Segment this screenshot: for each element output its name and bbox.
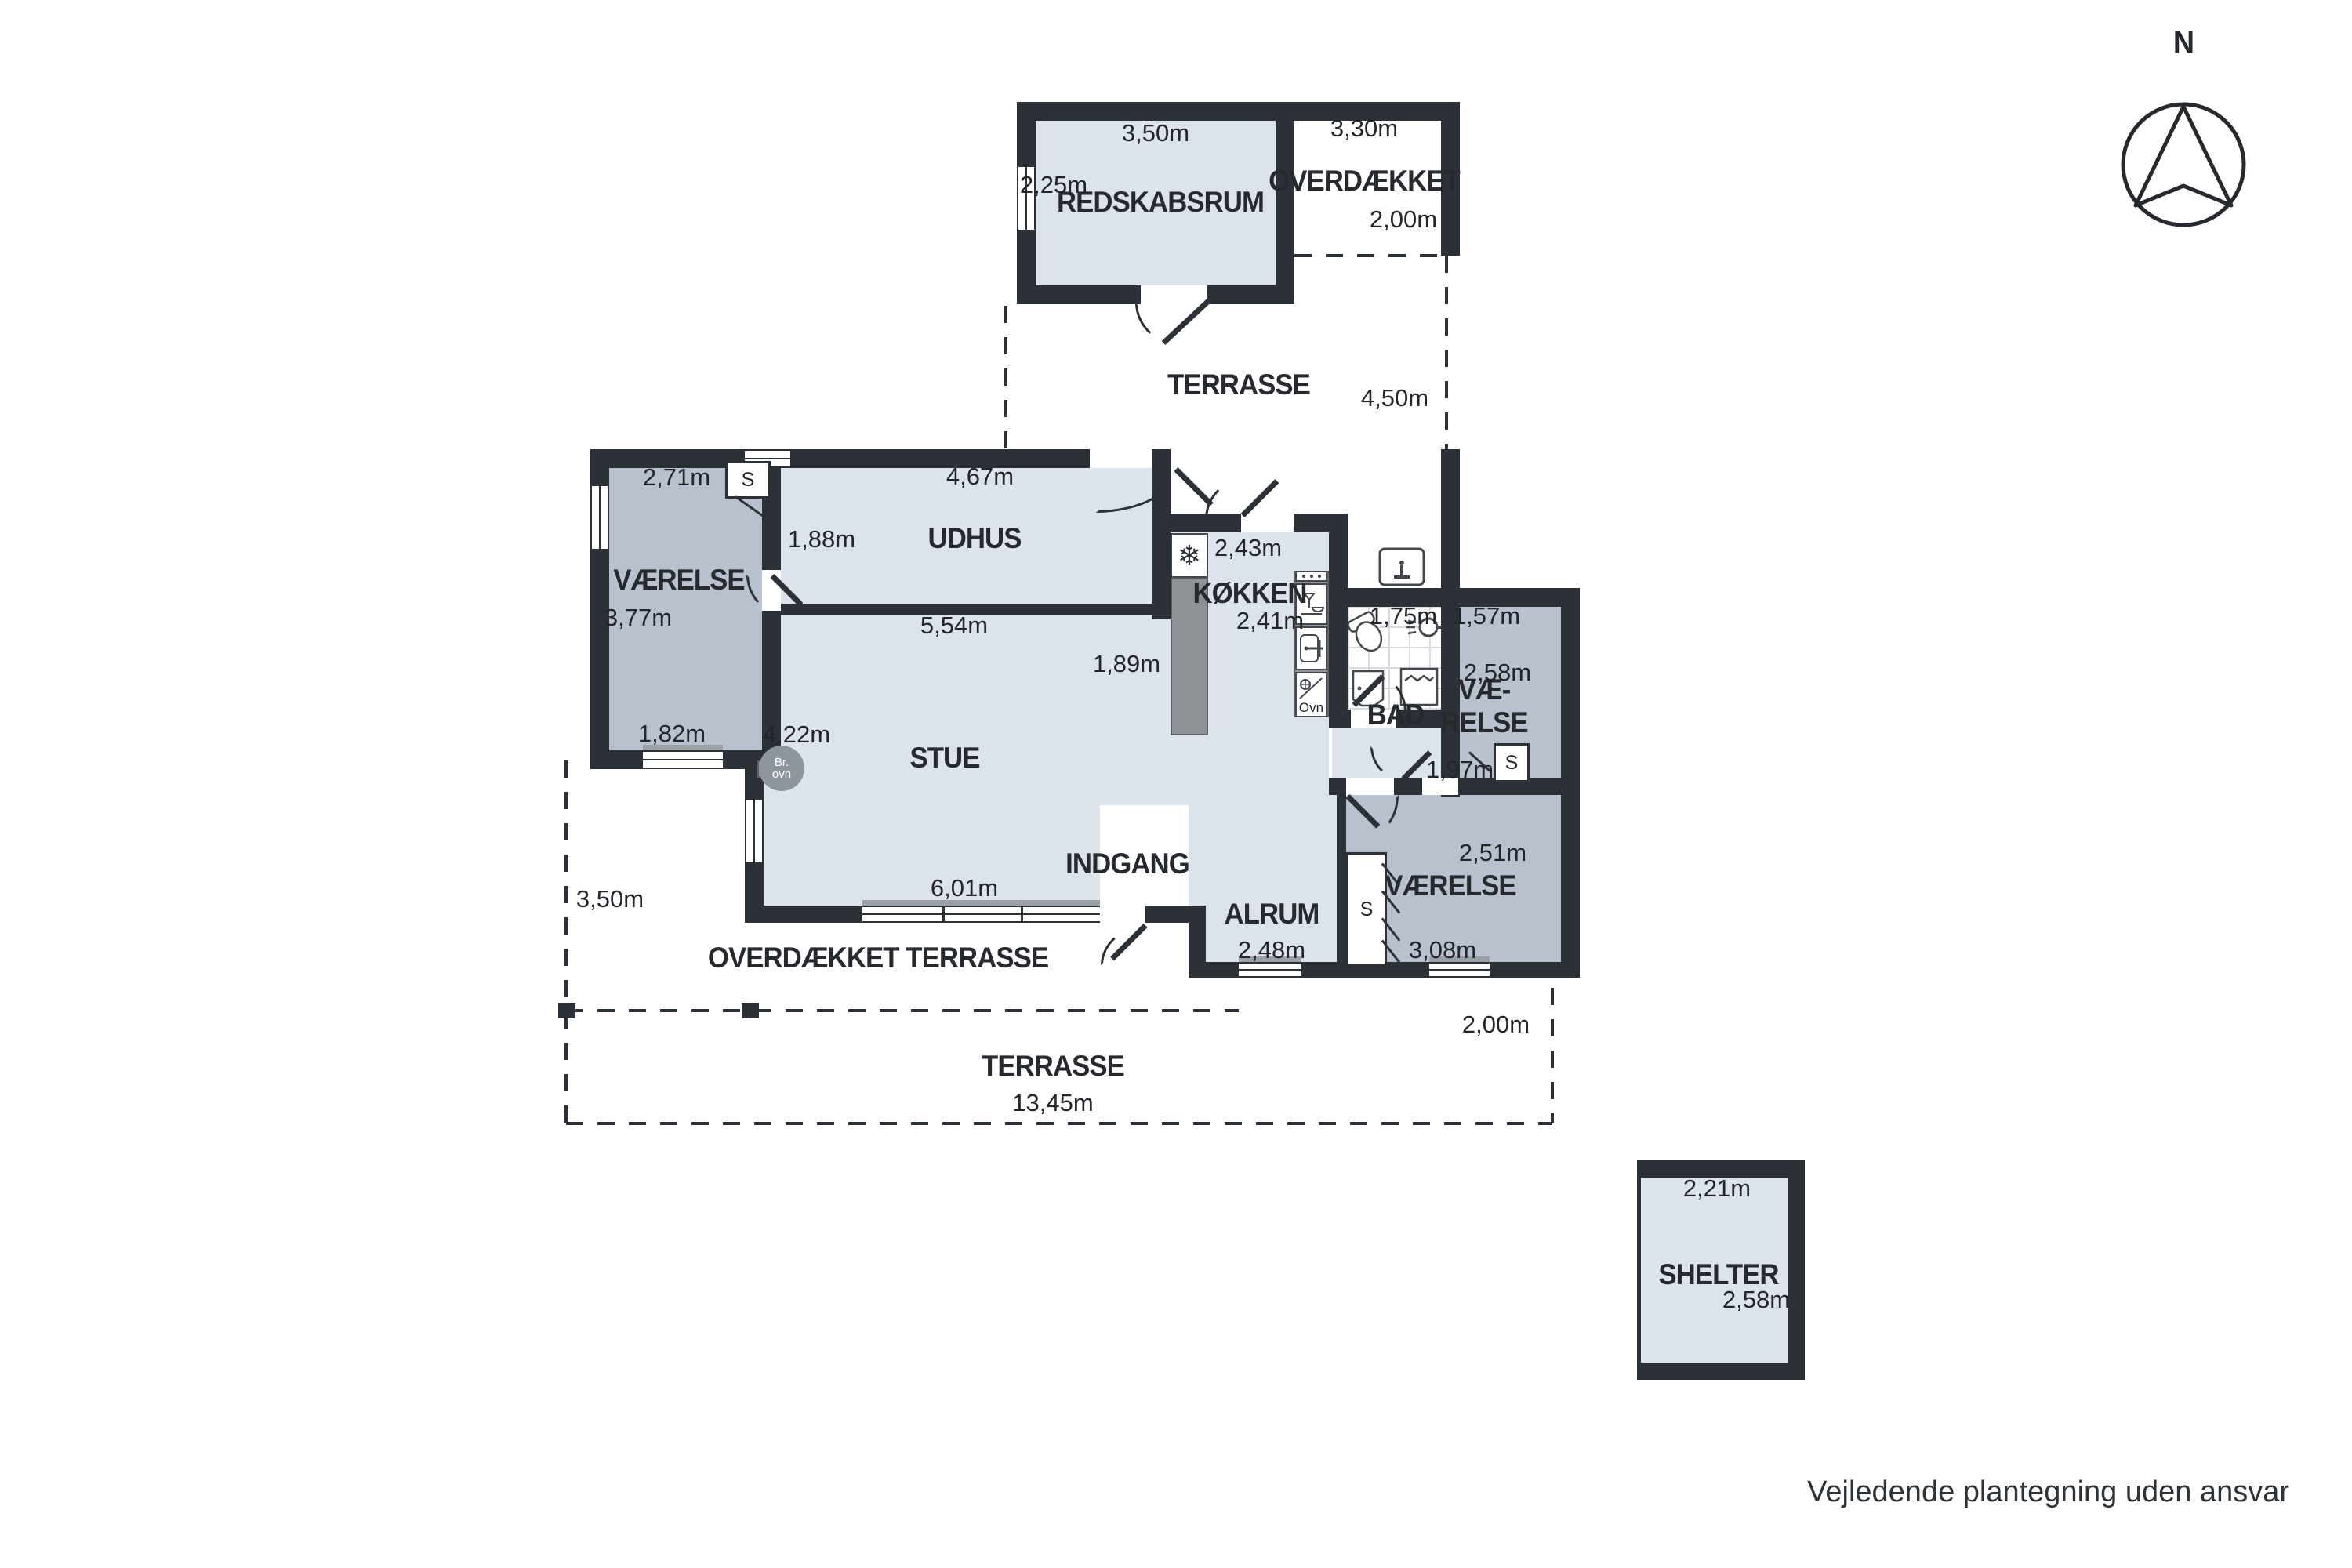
room-label-vaerelse-se: VÆRELSE xyxy=(1385,869,1515,902)
dim-vaerelse-se-width: 3,08m xyxy=(1409,936,1476,964)
window xyxy=(590,486,609,549)
window xyxy=(862,906,1100,923)
dim-vaerelse-e-width: 1,57m xyxy=(1453,602,1520,630)
door-arc xyxy=(1135,303,1187,348)
room-label-udhus: UDHUS xyxy=(928,522,1022,555)
closet-label: S xyxy=(1505,752,1519,775)
dim-vaerelse-e-depth: 2,58m xyxy=(1464,659,1531,687)
room-label-overdaekket-terrasse: OVERDÆKKET TERRASSE xyxy=(708,942,1048,975)
shelter-open-side xyxy=(1637,1160,1641,1380)
dim-terrasse-east: 2,00m xyxy=(1462,1011,1530,1039)
window-mullion xyxy=(1021,906,1023,923)
closet-label: S xyxy=(742,469,755,492)
kitchen-sink-icon xyxy=(1298,630,1325,666)
terrasse-dashed-east xyxy=(1551,988,1554,1123)
dim-stue-top: 5,54m xyxy=(920,612,988,640)
window xyxy=(1429,962,1490,978)
terrasse-dashed-west xyxy=(564,760,568,1123)
wall xyxy=(1788,1160,1805,1380)
dim-stue-east: 1,89m xyxy=(1093,650,1160,678)
door-opening xyxy=(1100,906,1145,923)
door-arc xyxy=(1101,924,1149,965)
window xyxy=(745,800,764,862)
closet-nw: S xyxy=(725,461,771,499)
terrasse-post xyxy=(742,1003,759,1018)
dim-stue-west: 4,22m xyxy=(763,720,830,749)
wall xyxy=(1189,906,1206,978)
dim-shelter-depth: 2,58m xyxy=(1722,1286,1790,1314)
dim-vaerelse-nw-depth: 3,77m xyxy=(604,604,672,632)
dim-udhus-depth: 1,88m xyxy=(788,525,855,554)
wall xyxy=(1441,449,1460,502)
wall xyxy=(1337,795,1346,962)
closet-e: S xyxy=(1494,743,1530,782)
dim-redskabsrum-width: 3,50m xyxy=(1122,119,1189,147)
dim-overdaekket-terrasse-depth: 3,50m xyxy=(576,885,644,913)
room-label-vaerelse-nw: VÆRELSE xyxy=(613,564,744,597)
wall xyxy=(1329,514,1348,728)
boundary-dashed xyxy=(1445,256,1448,449)
terrasse-post xyxy=(558,1003,575,1018)
room-label-koekken: KØKKEN xyxy=(1192,577,1306,610)
room-label-terrasse-lower: TERRASSE xyxy=(982,1050,1124,1083)
boundary-dashed xyxy=(1004,306,1007,449)
closet-se: S xyxy=(1346,852,1387,967)
window xyxy=(1239,962,1301,978)
wall xyxy=(1637,1363,1805,1380)
compass-north-label: N xyxy=(2173,26,2194,61)
wood-stove-label: Br. xyxy=(775,757,789,768)
compass xyxy=(2101,47,2266,235)
washbasin-icon xyxy=(1377,546,1427,590)
dim-terrasse-width: 13,45m xyxy=(1012,1089,1093,1117)
room-label-bad: BAD xyxy=(1367,699,1425,731)
stove: Ovn xyxy=(1295,672,1327,717)
dim-stue-window: 6,01m xyxy=(931,874,998,902)
wood-stove: Br. ovn xyxy=(759,746,804,791)
closet-label: S xyxy=(1360,898,1374,921)
boundary-dashed xyxy=(1294,254,1441,257)
room-label-indgang: INDGANG xyxy=(1065,848,1189,880)
dim-vaerelse-nw-bottom: 1,82m xyxy=(638,720,706,748)
dim-shelter-width: 2,21m xyxy=(1683,1174,1751,1203)
terrasse-dashed-south xyxy=(566,1122,1552,1125)
dim-overdaekket-width: 3,30m xyxy=(1330,114,1398,143)
stove-label: Ovn xyxy=(1299,700,1323,716)
dim-vaerelse-nw-width: 2,71m xyxy=(643,463,710,492)
dim-redskabsrum-depth: 2,25m xyxy=(1020,171,1087,199)
wood-stove-label: ovn xyxy=(772,768,791,780)
door-arc xyxy=(1205,477,1249,519)
terrasse-post-line xyxy=(566,1009,1239,1012)
room-label-overdaekket: OVERDÆKKET xyxy=(1269,165,1460,198)
room-label-terrasse-upper: TERRASSE xyxy=(1167,368,1310,401)
disclaimer-text: Vejledende plantegning uden ansvar xyxy=(1807,1475,2289,1509)
north-arrow-icon xyxy=(2136,107,2231,205)
window xyxy=(643,750,723,769)
stove-icon xyxy=(1298,677,1325,700)
room-label-vaerelse-e-2: RELSE xyxy=(1440,706,1527,739)
snowflake-icon: ❄ xyxy=(1178,539,1201,572)
dim-koekken-depth: 2,41m xyxy=(1236,607,1304,635)
dim-bad-width: 1,75m xyxy=(1370,602,1437,630)
dim-terrasse-gap: 4,50m xyxy=(1361,384,1428,412)
dim-alrum-width: 2,48m xyxy=(1238,936,1305,964)
room-label-stue: STUE xyxy=(909,742,979,775)
window-mullion xyxy=(942,906,945,923)
wall xyxy=(1441,502,1460,797)
floor-plan: ❄ Ovn xyxy=(0,0,2352,1568)
dim-koekken-width: 2,43m xyxy=(1214,534,1282,562)
door-leaf xyxy=(1174,467,1214,506)
dim-vaerelse-se-depth: 2,51m xyxy=(1459,839,1526,867)
dim-overdaekket-depth: 2,00m xyxy=(1370,205,1437,234)
dim-vaerelse-e-bottom: 1,97m xyxy=(1426,756,1494,784)
door-opening xyxy=(1141,285,1207,304)
dim-udhus-width: 4,67m xyxy=(946,463,1014,491)
door-opening xyxy=(1346,778,1394,795)
wall xyxy=(1276,121,1294,285)
room-label-redskabsrum: REDSKABSRUM xyxy=(1057,186,1264,219)
room-label-alrum: ALRUM xyxy=(1225,898,1319,931)
